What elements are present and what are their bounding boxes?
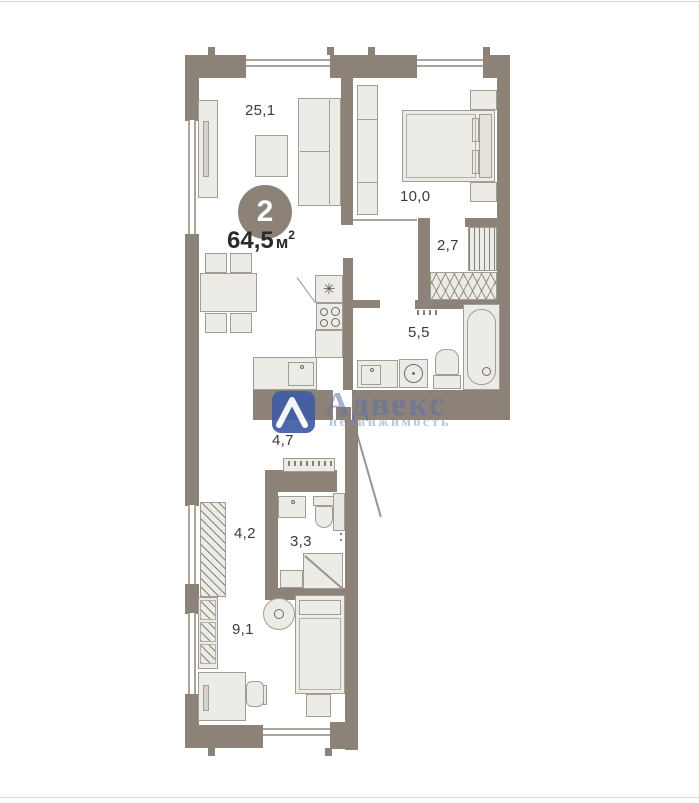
wall-bottom-right [330, 722, 353, 749]
bedroom-wardrobe [357, 85, 378, 215]
burner-icon [331, 307, 340, 316]
area-label-bedroom: 10,0 [400, 188, 430, 205]
sofa-backrest [329, 100, 339, 204]
wall-left [185, 234, 199, 506]
wall-right-lower [345, 420, 358, 750]
round-table [263, 598, 295, 630]
dining-table [200, 273, 257, 312]
burner-icon [320, 319, 328, 327]
wall-kitchen-stub [353, 300, 380, 308]
sofa [298, 98, 341, 206]
bath-vanity [357, 360, 398, 388]
chair [205, 313, 227, 333]
window-small-room [188, 613, 196, 695]
kitchen-cabinet [315, 330, 343, 358]
total-area-sup: 2 [288, 228, 295, 242]
closet-shelving [468, 227, 497, 271]
wall-left [185, 55, 199, 121]
advex-logo-glyph [272, 391, 315, 433]
double-bed [402, 110, 495, 182]
facade-tick [368, 47, 375, 55]
small-bath-vanity [278, 496, 306, 518]
faucet-icon [300, 365, 304, 369]
image-top-border [0, 1, 699, 2]
area-label-hall: 4,7 [272, 432, 294, 449]
pillow [299, 600, 341, 615]
faucet-icon [291, 500, 295, 504]
corridor-wardrobe [200, 502, 226, 597]
pillow [472, 150, 479, 174]
door-hinge-dots [340, 533, 342, 545]
toilet-bowl [435, 349, 459, 375]
area-label-bath-main: 5,5 [408, 324, 430, 341]
window-small-room-bottom [263, 728, 330, 736]
area-label-living: 25,1 [245, 102, 275, 119]
total-area-label: 64,5м2 [227, 227, 295, 255]
bedside-table [306, 694, 331, 717]
washer-dot [412, 372, 415, 375]
total-area-unit: м [276, 233, 289, 252]
facade-tick [208, 47, 215, 55]
mattress [406, 114, 476, 178]
shelf-cell [200, 622, 216, 642]
sofa-cushion-line [300, 151, 330, 152]
area-label-bath-small: 3,3 [290, 533, 312, 550]
total-area-value: 64,5 [227, 227, 274, 254]
coffee-table [255, 135, 288, 177]
sink [361, 365, 381, 385]
wall-living-bedroom [341, 75, 353, 225]
wall-bottom-left [185, 725, 263, 748]
wall-bedroom-bottom [465, 218, 510, 227]
tv-stand [198, 100, 218, 198]
closet-hanging-rail [430, 272, 497, 300]
desk-chair-back [263, 685, 267, 705]
bedroom-opening-line [353, 219, 417, 221]
wall-kitchen-right [343, 258, 353, 390]
facade-tick [483, 47, 490, 55]
fridge-icon: ✳ [316, 276, 342, 302]
floorplan-image: ✳ [0, 0, 699, 803]
mattress [299, 618, 341, 690]
shelf-unit [198, 597, 218, 669]
bath-mat [280, 570, 303, 588]
pillow [472, 118, 479, 142]
single-bed [295, 595, 345, 694]
stove [316, 303, 343, 330]
facade-tick [327, 47, 334, 55]
monitor [203, 685, 209, 711]
tv [203, 121, 209, 177]
small-toilet-bowl [315, 506, 333, 528]
image-bottom-border [0, 797, 699, 798]
shoe-cabinet [283, 458, 335, 472]
chair [230, 313, 252, 333]
burner-icon [320, 308, 328, 316]
nightstand [470, 90, 497, 110]
advex-logo-icon [272, 391, 315, 433]
facade-tick [325, 748, 332, 756]
headboard [479, 114, 492, 178]
window-living-room [246, 59, 330, 67]
facade-tick [208, 748, 215, 756]
wall-corridor-bath [265, 470, 278, 600]
watermark-tagline: недвижимость [329, 415, 451, 431]
bathtub [463, 304, 500, 390]
chair [230, 253, 252, 273]
window-corridor [188, 505, 196, 585]
shelf-cell [200, 600, 216, 620]
wardrobe-divider [358, 119, 377, 120]
bath-door-hinge-dots [417, 310, 437, 315]
desk-chair [246, 681, 264, 707]
washing-machine [399, 359, 428, 388]
fridge: ✳ [315, 275, 343, 303]
fridge-door-line [297, 277, 316, 303]
bathtub-inner [467, 309, 496, 385]
area-label-closet: 2,7 [437, 237, 459, 254]
wall-left [185, 584, 199, 614]
area-label-corridor: 4,2 [234, 525, 256, 542]
kitchen-counter [253, 357, 317, 390]
round-table-center [274, 609, 284, 619]
shoe-cabinet-ticks [288, 461, 332, 466]
desk [198, 672, 246, 721]
wall-closet-left [418, 218, 430, 306]
wardrobe-divider [358, 182, 377, 183]
drain-icon [482, 367, 491, 376]
small-toilet-tank [313, 496, 335, 506]
shelf-cell [200, 644, 216, 664]
window-living-side [188, 120, 196, 235]
kitchen-sink [288, 362, 314, 386]
bath-door-leaf [333, 493, 345, 531]
burner-icon [331, 318, 340, 327]
chair [205, 253, 227, 273]
window-bedroom [417, 59, 483, 67]
faucet-icon [370, 368, 374, 372]
area-label-small-room: 9,1 [232, 621, 254, 638]
nightstand [470, 182, 497, 202]
